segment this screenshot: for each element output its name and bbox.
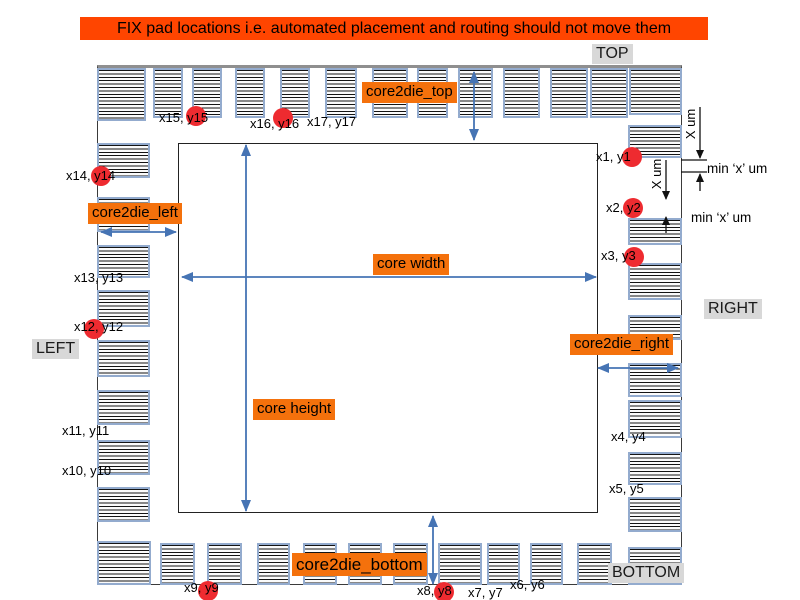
pad-label-x8: x8, y8 <box>417 584 452 598</box>
pad-right <box>628 218 682 245</box>
pad-label-x1: x1, y1 <box>596 150 631 164</box>
pad-left <box>97 390 150 425</box>
pad-bottom <box>438 543 482 585</box>
label-core2die-top: core2die_top <box>362 82 457 103</box>
pad-top <box>458 68 493 118</box>
pad-label-x10: x10, y10 <box>62 464 111 478</box>
pad-top <box>590 68 628 118</box>
pad-label-x3: x3, y3 <box>601 249 636 263</box>
pad-label-x14: x14, y14 <box>66 169 115 183</box>
pad-top <box>235 68 265 118</box>
side-label-bottom: BOTTOM <box>608 563 684 583</box>
pad-top <box>503 68 540 118</box>
pad-left <box>97 340 150 377</box>
pad-label-x6: x6, y6 <box>510 578 545 592</box>
label-core-width: core width <box>373 254 449 275</box>
pad-label-x12: x12, y12 <box>74 320 123 334</box>
pad-label-x13: x13, y13 <box>74 271 123 285</box>
side-label-top: TOP <box>592 44 633 64</box>
pad-bottom <box>207 543 242 585</box>
pad-top <box>629 68 682 115</box>
pad-label-x4: x4, y4 <box>611 430 646 444</box>
pad-bottom <box>160 543 195 585</box>
label-core2die-right: core2die_right <box>570 334 673 355</box>
pad-top <box>325 68 357 118</box>
pad-bottom <box>97 541 151 585</box>
pad-top <box>97 68 146 121</box>
side-label-right: RIGHT <box>704 299 762 319</box>
pad-label-x16: x16, y16 <box>250 117 299 131</box>
pad-label-x2: x2, y2 <box>606 201 641 215</box>
label-core2die-bottom: core2die_bottom <box>292 553 427 576</box>
annotation-x-um-1: X um <box>683 104 697 144</box>
pad-label-x5: x5, y5 <box>609 482 644 496</box>
label-core2die-left: core2die_left <box>88 203 182 224</box>
pad-bottom <box>577 543 612 585</box>
pad-placement-diagram: FIX pad locations i.e. automated placeme… <box>0 0 800 600</box>
annotation-x-um-2: X um <box>649 154 663 194</box>
pad-top <box>550 68 588 118</box>
pad-left <box>97 487 150 522</box>
pad-right <box>628 263 682 300</box>
label-core-height: core height <box>253 399 335 420</box>
pad-label-x11: x11, y11 <box>62 424 109 438</box>
pad-label-x9: x9, y9 <box>184 581 219 595</box>
pad-right <box>628 497 682 532</box>
pad-bottom <box>257 543 290 585</box>
annotation-min-x-um-2: min ‘x’ um <box>691 210 751 225</box>
pad-label-x7: x7, y7 <box>468 586 503 600</box>
fix-pad-banner: FIX pad locations i.e. automated placeme… <box>80 17 708 40</box>
pad-right <box>628 363 682 397</box>
core-area <box>178 143 598 513</box>
pad-label-x15: x15, y15 <box>159 111 208 125</box>
annotation-min-x-um-1: min ‘x’ um <box>707 161 767 176</box>
pad-label-x17: x17, y17 <box>307 115 356 129</box>
side-label-left: LEFT <box>32 339 79 359</box>
